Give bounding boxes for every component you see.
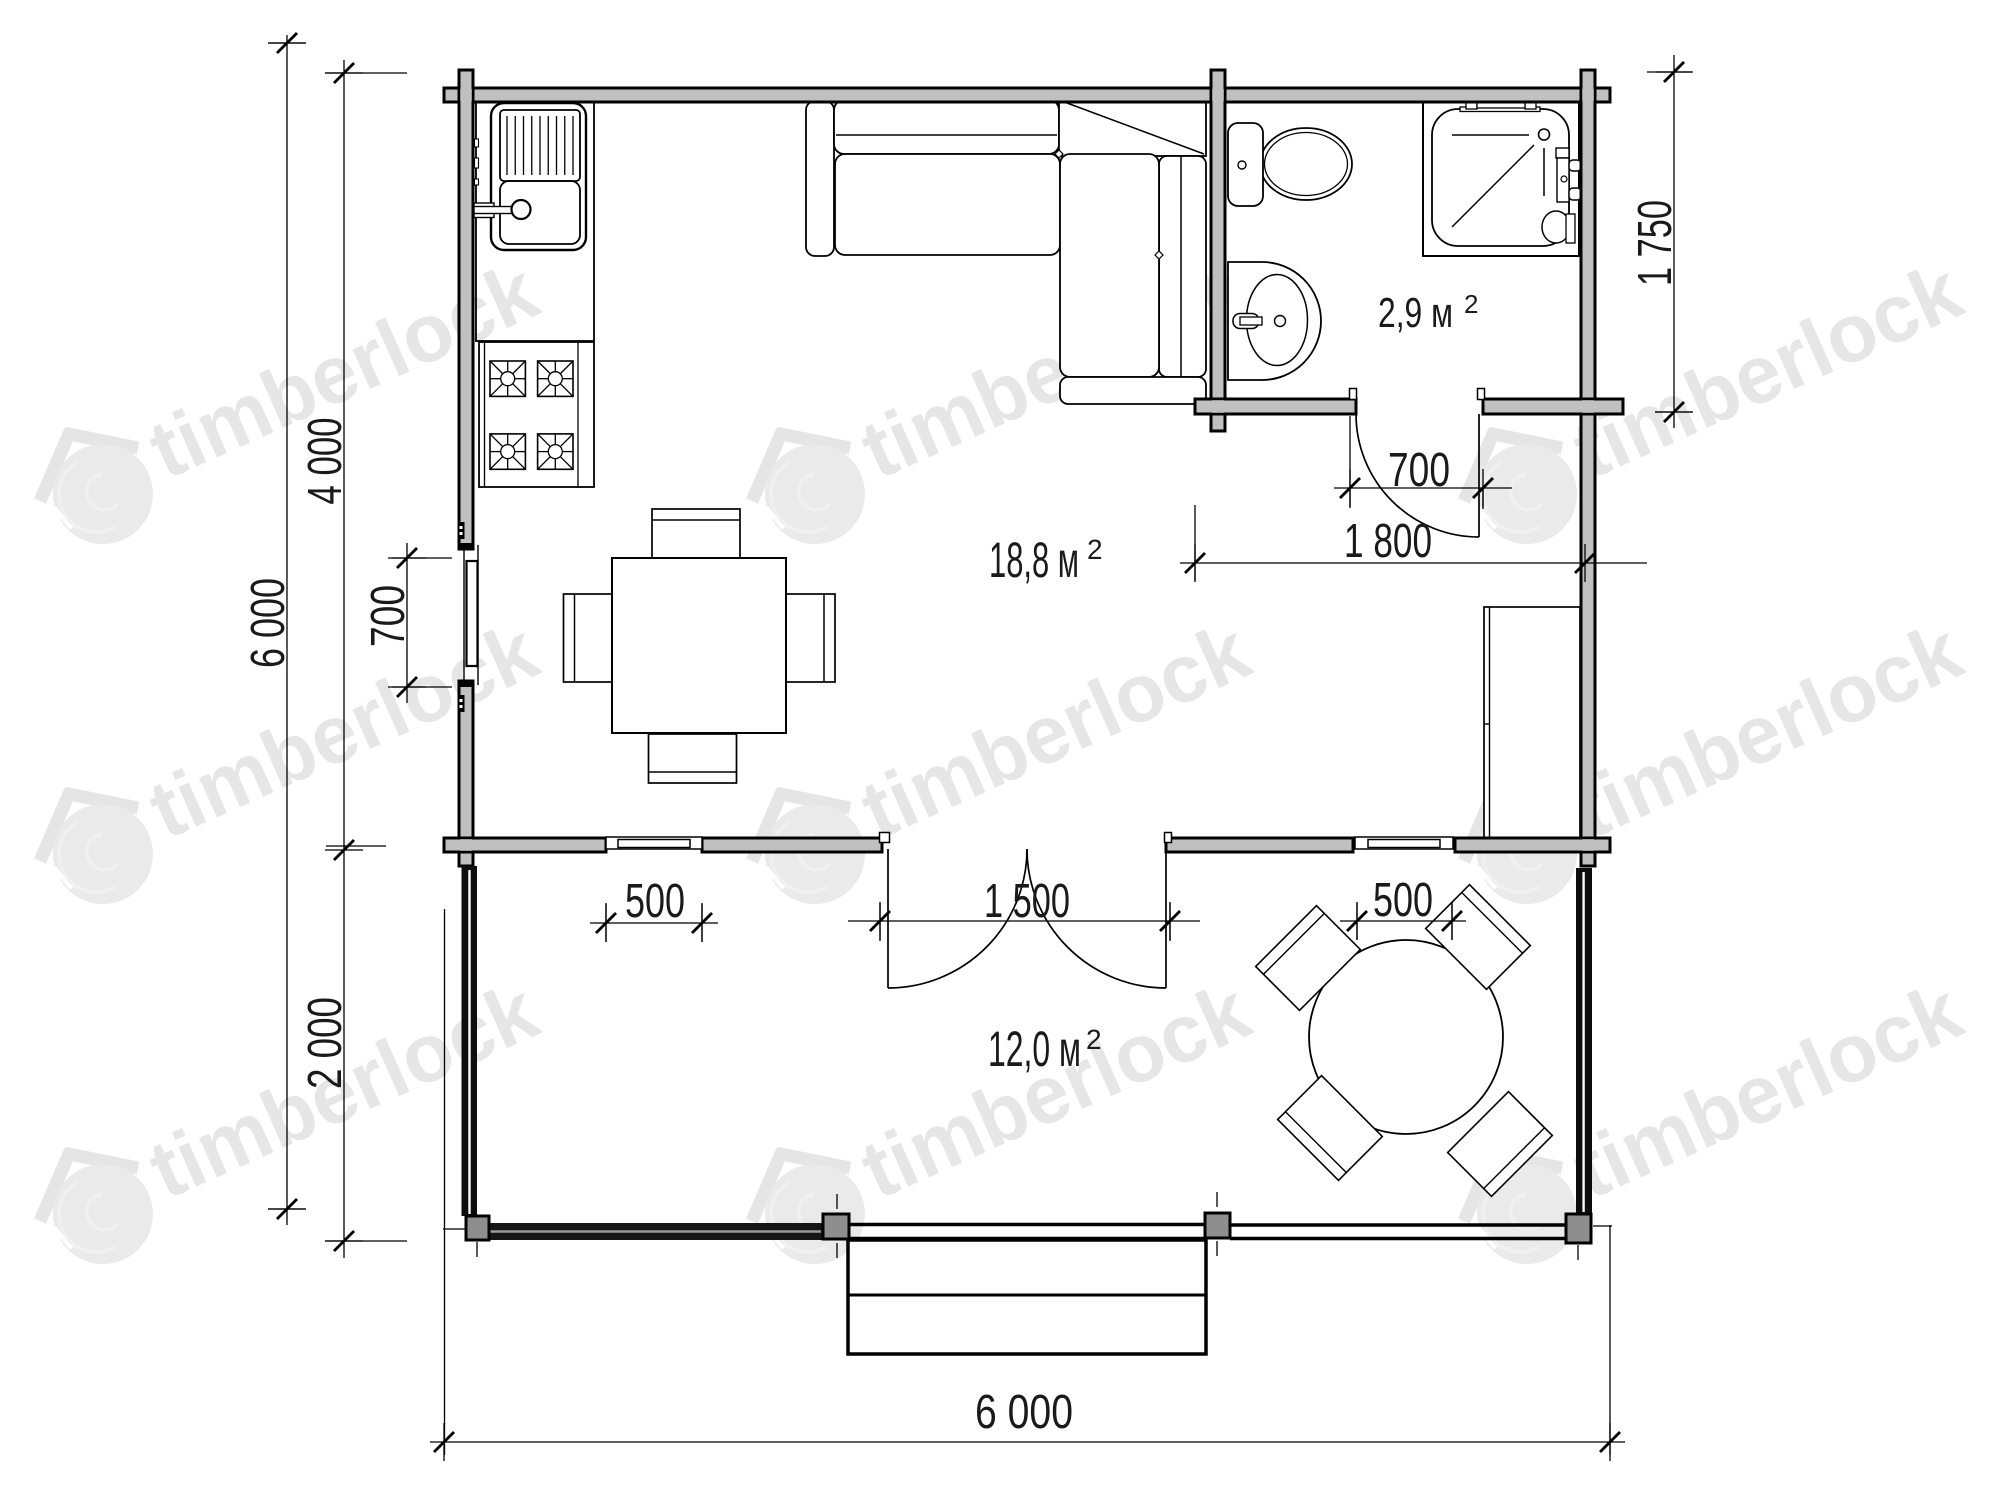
svg-text:6 000: 6 000 (242, 578, 295, 668)
svg-text:1 800: 1 800 (1344, 515, 1432, 568)
svg-text:2,9 м: 2,9 м (1378, 289, 1453, 336)
svg-text:2: 2 (1086, 1024, 1102, 1055)
svg-text:500: 500 (625, 875, 685, 928)
svg-text:12,0 м: 12,0 м (988, 1021, 1081, 1077)
svg-text:1 750: 1 750 (1629, 200, 1682, 286)
svg-text:700: 700 (1388, 444, 1450, 497)
svg-text:2 000: 2 000 (299, 997, 352, 1089)
svg-text:500: 500 (1373, 874, 1433, 927)
svg-text:700: 700 (362, 585, 415, 647)
svg-text:18,8 м: 18,8 м (989, 532, 1079, 588)
svg-text:2: 2 (1087, 534, 1103, 565)
svg-text:2: 2 (1464, 289, 1478, 319)
svg-text:1 500: 1 500 (984, 875, 1070, 928)
svg-text:4 000: 4 000 (299, 418, 352, 505)
svg-text:6 000: 6 000 (975, 1386, 1073, 1439)
